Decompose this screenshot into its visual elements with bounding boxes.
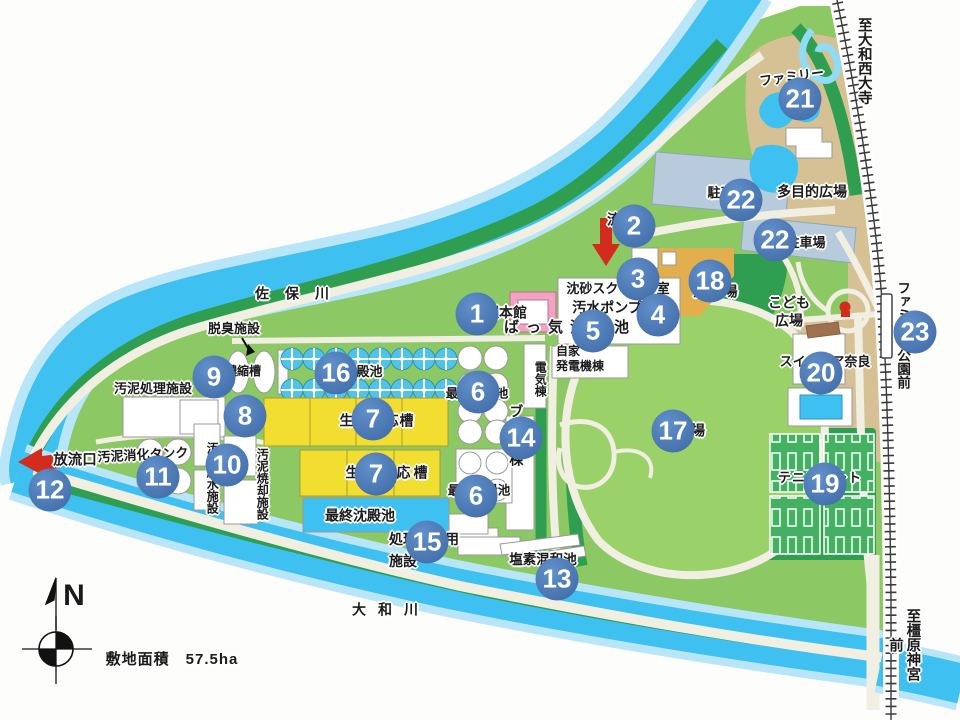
- map-marker-8[interactable]: 8: [224, 395, 267, 438]
- map-marker-22[interactable]: 22: [754, 219, 797, 262]
- map-marker-9[interactable]: 9: [193, 356, 236, 399]
- map-marker-7[interactable]: 7: [355, 453, 398, 496]
- map-marker-10[interactable]: 10: [206, 444, 249, 487]
- map-marker-4[interactable]: 4: [637, 294, 680, 337]
- map-marker-12[interactable]: 12: [29, 469, 72, 512]
- map-marker-19[interactable]: 19: [804, 463, 847, 506]
- map-marker-13[interactable]: 13: [536, 558, 579, 601]
- map-marker-14[interactable]: 14: [500, 417, 543, 460]
- map-marker-22[interactable]: 22: [720, 179, 763, 222]
- map-marker-2[interactable]: 2: [613, 205, 656, 248]
- map-marker-11[interactable]: 11: [137, 456, 180, 499]
- map-marker-16[interactable]: 16: [315, 352, 358, 395]
- map-marker-1[interactable]: 1: [456, 293, 499, 336]
- map-marker-7[interactable]: 7: [352, 398, 395, 441]
- station-platform: [881, 294, 892, 358]
- map-marker-6[interactable]: 6: [455, 475, 498, 518]
- map-marker-6[interactable]: 6: [457, 371, 500, 414]
- map-marker-20[interactable]: 20: [800, 352, 843, 395]
- admin-building: [510, 292, 556, 332]
- map-marker-5[interactable]: 5: [572, 310, 615, 353]
- map-marker-17[interactable]: 17: [652, 410, 695, 453]
- map-marker-18[interactable]: 18: [689, 260, 732, 303]
- map-marker-23[interactable]: 23: [894, 311, 937, 354]
- map-marker-15[interactable]: 15: [406, 521, 449, 564]
- map-stage: 佐保川 大和川 至大和西大寺 ファミリー公園前 至橿原神宮前 敷地面積 57.5…: [0, 0, 960, 720]
- map-marker-21[interactable]: 21: [779, 78, 822, 121]
- playground-icon: [840, 302, 851, 318]
